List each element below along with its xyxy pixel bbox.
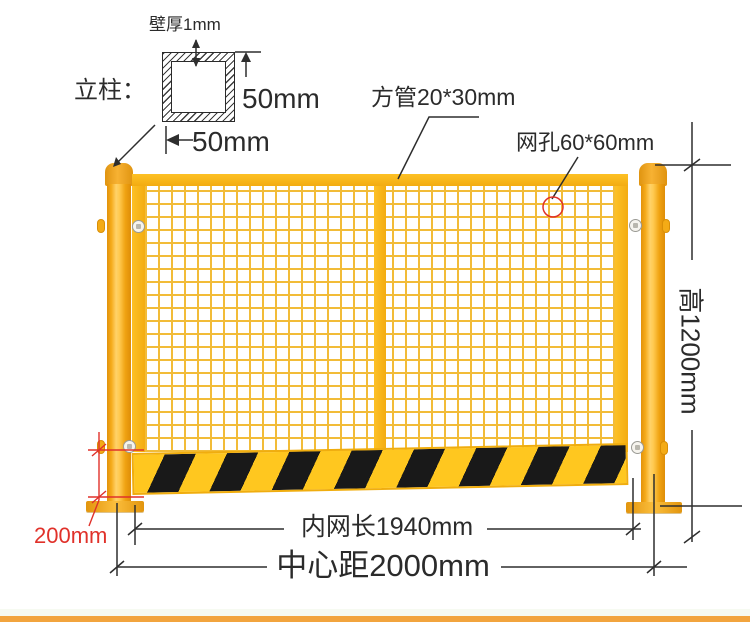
black-dimension-lines xyxy=(110,40,742,576)
fence-dimension-diagram: 壁厚1mm 立柱： 50mm 50mm 方管20*30mm 网孔60*60mm … xyxy=(0,0,750,622)
arrowheads xyxy=(113,39,251,167)
dimension-lines-overlay xyxy=(0,0,750,622)
mesh-hole-highlight-circle xyxy=(543,197,563,217)
